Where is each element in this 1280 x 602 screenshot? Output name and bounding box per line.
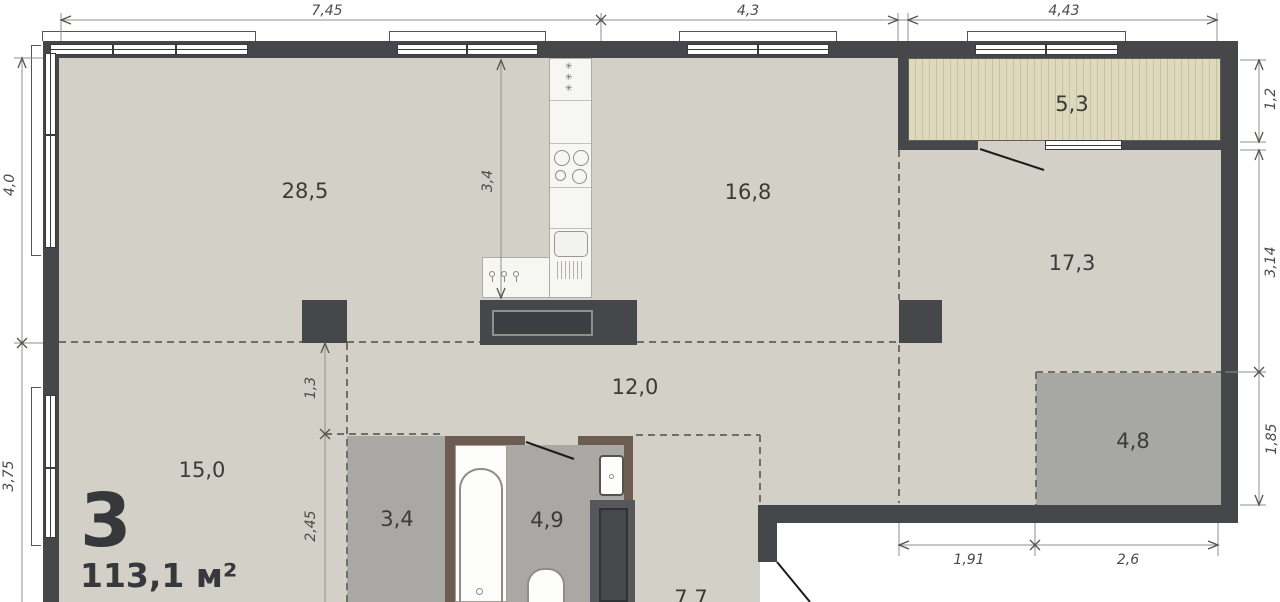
window-living-1 (50, 44, 248, 55)
kitchen-island-top (492, 310, 593, 336)
dim-label-left-2: 3,75 (1, 460, 17, 491)
window-left-upper (45, 53, 56, 248)
wall-bath-top-left (445, 436, 525, 445)
window-mullion (757, 44, 759, 55)
window-mullion (45, 134, 56, 136)
window-sill (31, 387, 41, 546)
stove-burner-icon (573, 150, 589, 166)
apartment-number: 3 (80, 484, 132, 558)
window-sill (42, 31, 256, 41)
bathtub-rim (459, 468, 503, 602)
window-mullion (175, 44, 177, 55)
counter-divider (550, 100, 591, 101)
outside-area (760, 523, 1221, 602)
room-label-bedroom-right: 17,3 (1049, 251, 1096, 275)
wall-bath-right (624, 445, 633, 503)
room-label-hall: 12,0 (612, 375, 659, 399)
toilet (527, 568, 565, 602)
window-mullion (112, 44, 114, 55)
floor-plan: ✳ ✳ ✳ (0, 0, 1280, 602)
wall-bath-top-right (578, 436, 633, 445)
counter-divider (550, 228, 591, 229)
room-label-wardrobe: 4,8 (1116, 429, 1149, 453)
dim-label-bottom-1: 1,91 (953, 552, 984, 568)
room-label-wc: 3,4 (380, 507, 413, 531)
room-label-corridor: 7,7 (674, 586, 707, 602)
stove-burner-icon (554, 150, 570, 166)
room-label-balcony: 5,3 (1055, 92, 1088, 116)
window-mullion (45, 467, 56, 469)
dim-label-right-2: 3,14 (1263, 246, 1279, 277)
dim-label-left-1: 4,0 (2, 174, 18, 196)
bathtub-drain-icon (476, 588, 483, 595)
dim-label-room-width: 2,45 (303, 510, 319, 541)
wall-balcony-bottom-left (908, 141, 978, 150)
wall-bottom (760, 505, 1238, 523)
sink-drain-icon (609, 474, 614, 479)
tap-icon (513, 271, 519, 277)
window-mullion (466, 44, 468, 55)
fridge-icon: ✳ (565, 73, 573, 83)
apartment-total-area: 113,1 м² (80, 559, 237, 592)
column-left (302, 300, 347, 343)
dim-label-right-3: 1,85 (1264, 423, 1280, 454)
kitchen-drainboard-icon (557, 261, 585, 279)
stove-burner-icon (555, 170, 566, 181)
room-label-bathroom: 4,9 (530, 508, 563, 532)
wall-balcony-bottom-right (1122, 141, 1221, 150)
counter-divider (550, 143, 591, 144)
dim-label-kitchen-depth: 3,4 (480, 170, 496, 192)
window-balcony-inner (1045, 140, 1122, 150)
fridge-icon: ✳ (565, 84, 573, 94)
dim-label-hall-width: 1,3 (303, 377, 319, 399)
wall-entry-pier (758, 505, 777, 562)
dim-label-top-1: 7,45 (311, 3, 342, 19)
window-mullion (1045, 44, 1047, 55)
tap-icon (489, 271, 495, 277)
window-sill (389, 31, 546, 41)
counter-divider (550, 187, 591, 188)
dim-label-top-3: 4,43 (1048, 3, 1079, 19)
column-right (899, 300, 942, 343)
window-sill (31, 45, 41, 256)
room-label-living: 28,5 (282, 179, 329, 203)
wall-balcony-partition (898, 58, 908, 150)
window-sill (679, 31, 837, 41)
fridge-icon: ✳ (565, 62, 573, 72)
room-label-bedroom-left: 15,0 (179, 458, 226, 482)
wall-right (1221, 41, 1238, 523)
utility-shaft-inner (599, 508, 628, 602)
stove-burner-icon (572, 169, 587, 184)
kitchen-sink-icon (554, 231, 588, 257)
dim-label-top-2: 4,3 (737, 3, 759, 19)
room-label-kitchen: 16,8 (725, 180, 772, 204)
dim-label-bottom-2: 2,6 (1117, 552, 1139, 568)
dim-label-right-1: 1,2 (1263, 88, 1279, 110)
wall-bath-left (445, 445, 455, 602)
tap-icon (501, 271, 507, 277)
window-sill (967, 31, 1126, 41)
